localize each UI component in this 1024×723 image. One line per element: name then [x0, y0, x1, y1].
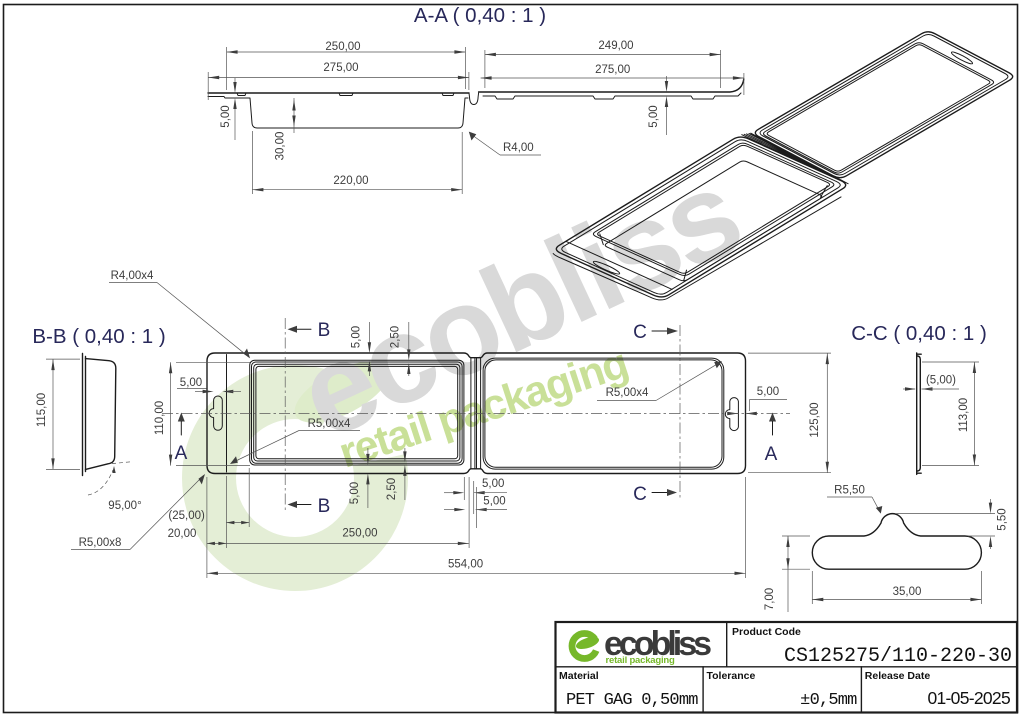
svg-text:A: A	[175, 443, 188, 464]
svg-text:01-05-2025: 01-05-2025	[927, 688, 1010, 708]
svg-text:R5,00x4: R5,00x4	[308, 418, 351, 430]
svg-text:PET GAG 0,50mm: PET GAG 0,50mm	[566, 691, 698, 710]
svg-text:35,00: 35,00	[893, 586, 922, 598]
svg-text:Product Code: Product Code	[732, 626, 801, 638]
svg-text:C-C ( 0,40 : 1 ): C-C ( 0,40 : 1 )	[851, 322, 987, 345]
svg-text:Release Date: Release Date	[865, 670, 931, 682]
svg-text:CS125275/110-220-30: CS125275/110-220-30	[784, 645, 1012, 668]
svg-text:5,00: 5,00	[349, 482, 361, 504]
svg-text:275,00: 275,00	[595, 64, 630, 76]
svg-text:95,00°: 95,00°	[108, 500, 141, 512]
svg-text:5,00: 5,00	[648, 105, 660, 127]
svg-text:B-B ( 0,40 : 1 ): B-B ( 0,40 : 1 )	[32, 325, 165, 348]
svg-text:5,00: 5,00	[757, 386, 779, 398]
svg-text:113,00: 113,00	[958, 398, 970, 432]
svg-text:(5,00): (5,00)	[926, 375, 956, 387]
svg-text:±0,5mm: ±0,5mm	[800, 691, 857, 710]
svg-text:B: B	[318, 320, 331, 341]
svg-text:A-A ( 0,40 : 1 ): A-A ( 0,40 : 1 )	[414, 4, 546, 27]
svg-text:A: A	[765, 444, 778, 465]
svg-text:5,00: 5,00	[483, 496, 505, 508]
svg-text:554,00: 554,00	[448, 559, 483, 571]
svg-text:C: C	[633, 484, 647, 505]
svg-text:5,00: 5,00	[180, 377, 202, 389]
svg-text:C: C	[633, 322, 647, 343]
svg-text:249,00: 249,00	[598, 40, 633, 52]
svg-text:2,50: 2,50	[390, 326, 402, 348]
svg-text:R5,50: R5,50	[834, 485, 865, 497]
svg-text:5,00: 5,00	[220, 105, 232, 127]
svg-text:R4,00: R4,00	[503, 142, 534, 154]
svg-text:115,00: 115,00	[36, 393, 48, 427]
svg-text:220,00: 220,00	[333, 175, 368, 187]
svg-text:250,00: 250,00	[325, 41, 360, 53]
svg-text:20,00: 20,00	[168, 528, 197, 540]
svg-text:R5,00x8: R5,00x8	[79, 537, 122, 549]
svg-text:B: B	[318, 496, 331, 517]
svg-text:R5,00x4: R5,00x4	[606, 387, 649, 399]
svg-text:250,00: 250,00	[342, 528, 377, 540]
svg-text:7,00: 7,00	[764, 588, 776, 610]
svg-text:R4,00x4: R4,00x4	[111, 270, 154, 282]
svg-text:5,00: 5,00	[350, 326, 362, 348]
svg-text:125,00: 125,00	[809, 402, 821, 437]
svg-text:Tolerance: Tolerance	[707, 670, 756, 682]
svg-text:5,00: 5,00	[482, 478, 504, 490]
svg-text:2,50: 2,50	[386, 478, 398, 500]
svg-text:275,00: 275,00	[323, 62, 358, 74]
svg-text:retail packaging: retail packaging	[606, 655, 676, 666]
svg-text:110,00: 110,00	[154, 401, 166, 435]
svg-text:(25,00): (25,00)	[168, 510, 205, 522]
svg-text:Material: Material	[559, 670, 599, 682]
svg-text:30,00: 30,00	[275, 132, 287, 161]
svg-text:5,50: 5,50	[997, 508, 1009, 530]
